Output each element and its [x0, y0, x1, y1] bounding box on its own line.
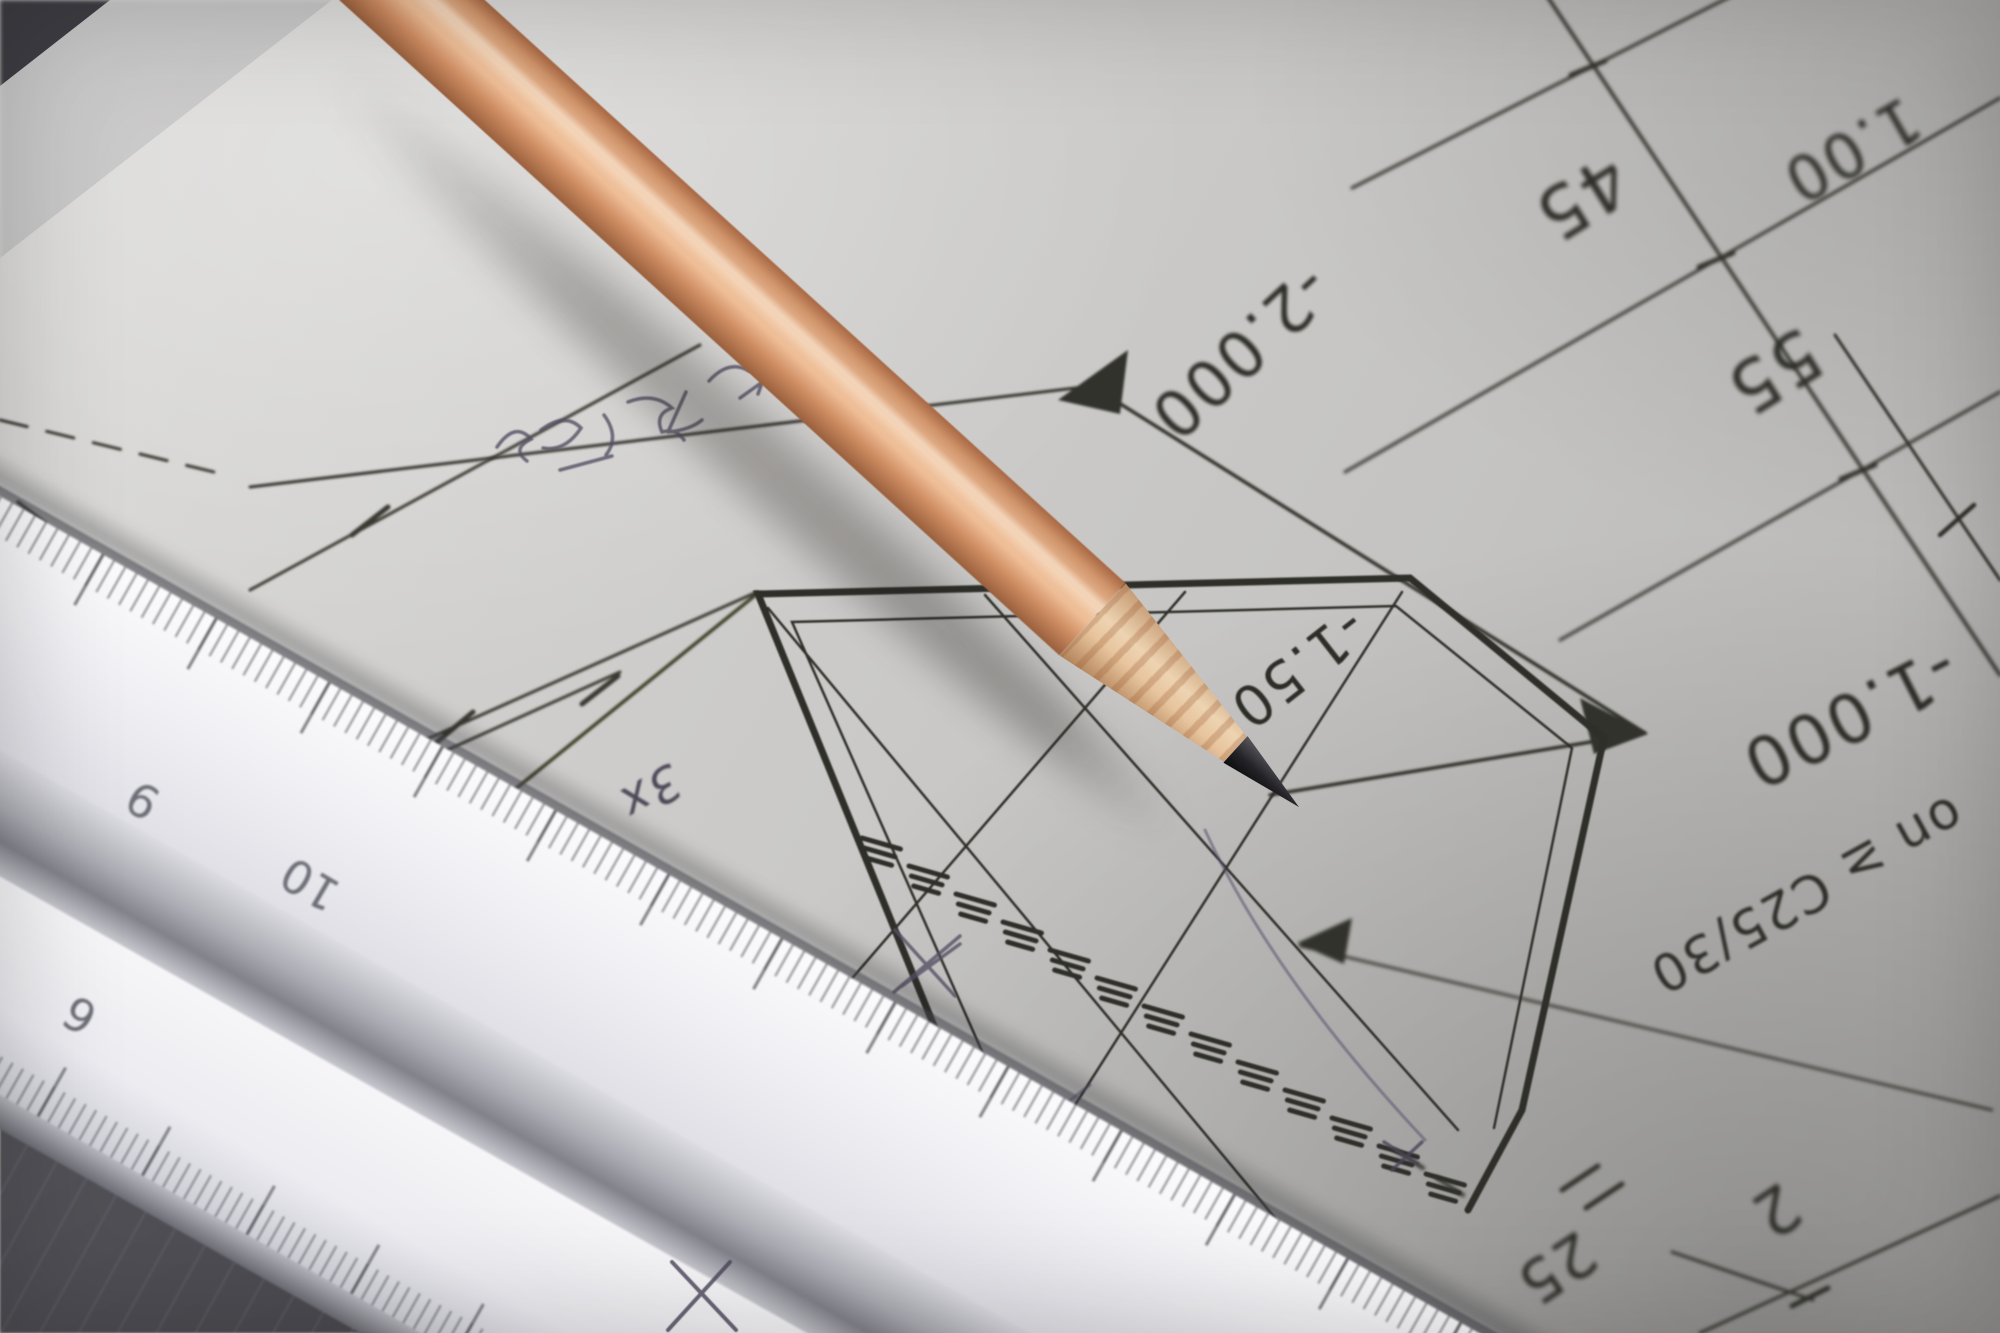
photo-blueprint-scene: -2.000 45 55 1.00 -1.50 -1.000 on ≥ C25/… — [0, 0, 2000, 1333]
